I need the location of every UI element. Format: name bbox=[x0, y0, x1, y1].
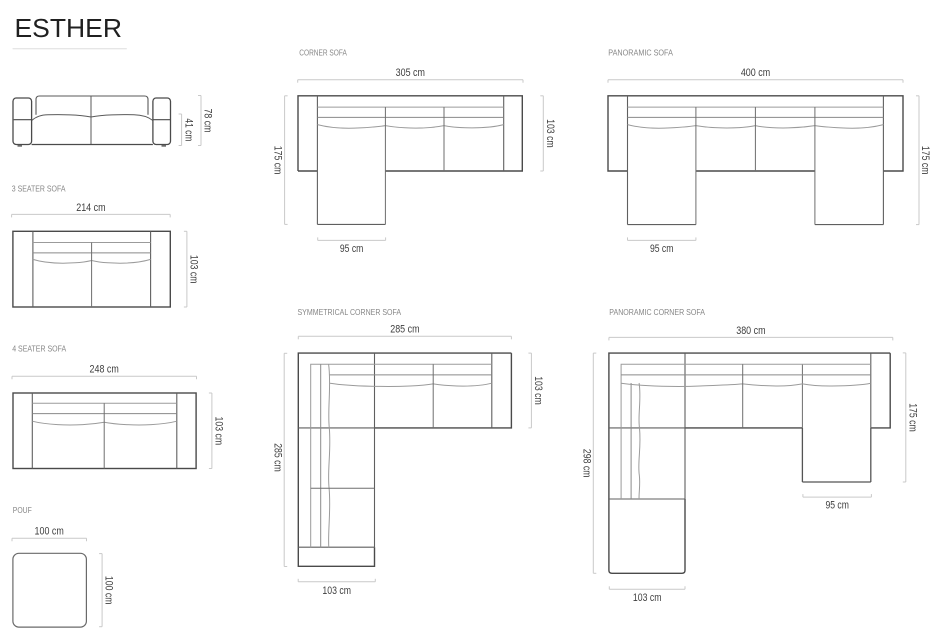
svg-text:103 cm: 103 cm bbox=[544, 119, 556, 148]
svg-text:95 cm: 95 cm bbox=[650, 243, 674, 255]
svg-text:3 SEATER SOFA: 3 SEATER SOFA bbox=[12, 183, 66, 193]
svg-text:POUF: POUF bbox=[13, 505, 32, 515]
svg-text:214 cm: 214 cm bbox=[76, 202, 105, 214]
svg-text:380 cm: 380 cm bbox=[736, 325, 765, 337]
svg-text:103 cm: 103 cm bbox=[532, 376, 544, 405]
svg-text:103 cm: 103 cm bbox=[322, 585, 351, 597]
svg-text:298 cm: 298 cm bbox=[581, 449, 593, 478]
svg-text:95 cm: 95 cm bbox=[340, 243, 364, 255]
svg-text:100 cm: 100 cm bbox=[103, 576, 115, 605]
svg-text:CORNER SOFA: CORNER SOFA bbox=[299, 48, 347, 58]
svg-text:175 cm: 175 cm bbox=[906, 403, 918, 432]
svg-text:SYMMETRICAL CORNER SOFA: SYMMETRICAL CORNER SOFA bbox=[298, 307, 402, 317]
svg-text:305 cm: 305 cm bbox=[396, 67, 425, 79]
svg-text:100 cm: 100 cm bbox=[35, 526, 64, 538]
svg-text:103 cm: 103 cm bbox=[187, 255, 199, 284]
svg-text:285 cm: 285 cm bbox=[390, 324, 419, 336]
svg-text:41 cm: 41 cm bbox=[182, 118, 194, 141]
svg-text:103 cm: 103 cm bbox=[212, 417, 224, 446]
svg-text:PANORAMIC SOFA: PANORAMIC SOFA bbox=[608, 48, 673, 58]
svg-text:248 cm: 248 cm bbox=[90, 364, 119, 376]
svg-text:103 cm: 103 cm bbox=[633, 592, 662, 604]
svg-text:175 cm: 175 cm bbox=[919, 146, 930, 175]
svg-text:78 cm: 78 cm bbox=[201, 109, 213, 133]
svg-text:95 cm: 95 cm bbox=[825, 500, 849, 512]
svg-text:PANORAMIC CORNER SOFA: PANORAMIC CORNER SOFA bbox=[609, 307, 705, 317]
svg-text:400 cm: 400 cm bbox=[741, 67, 770, 79]
svg-text:ESTHER: ESTHER bbox=[15, 15, 123, 43]
svg-text:285 cm: 285 cm bbox=[271, 443, 283, 472]
svg-text:175 cm: 175 cm bbox=[272, 146, 284, 175]
svg-text:4 SEATER SOFA: 4 SEATER SOFA bbox=[12, 344, 66, 354]
